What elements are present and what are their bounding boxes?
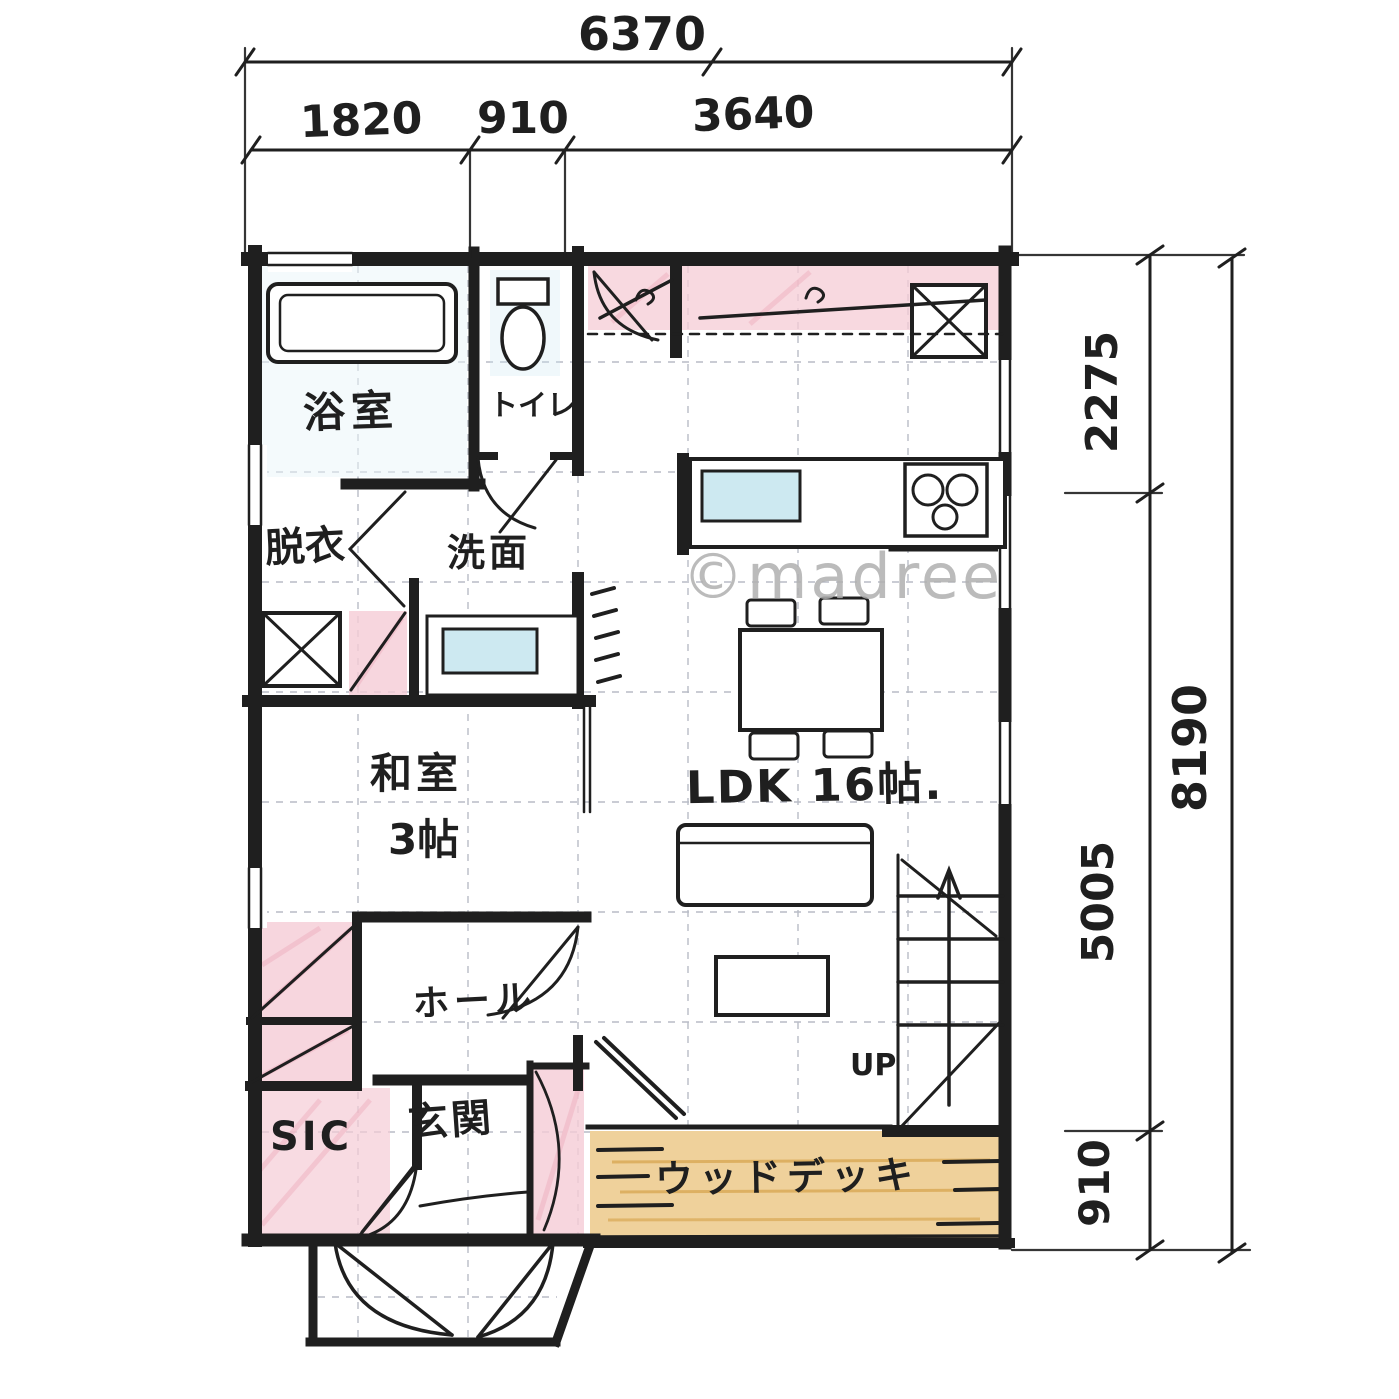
room-label-japanese-room: 和室 (370, 752, 462, 796)
toilet-icon (498, 279, 548, 369)
dimension-lines-top (236, 48, 1021, 258)
window (243, 445, 267, 525)
room-label-wood-deck: ウッドデッキ (655, 1156, 920, 1200)
opening-hatch-marks (592, 588, 620, 682)
room-label-dressing: 脱衣 (264, 524, 346, 570)
room-label-japanese-room-size: 3帖 (388, 818, 459, 862)
stove-icon (905, 464, 987, 536)
room-label-bath: 浴室 (302, 388, 399, 435)
stairs-up-label: UP (850, 1050, 896, 1082)
vanity-basin-icon (427, 616, 578, 695)
sofa-icon (678, 825, 872, 905)
dim-right-seg-910: 910 (1073, 1139, 1117, 1227)
floor-plan-sketch: 6370 1820 910 3640 2275 5005 910 8190 浴室… (0, 0, 1399, 1399)
bathtub-icon (268, 284, 456, 362)
window (268, 246, 352, 272)
kitchen-sink-icon (702, 471, 800, 521)
refrigerator-icon (912, 285, 986, 357)
window (243, 868, 267, 928)
dining-table-icon (740, 598, 882, 759)
room-label-washroom: 洗面 (447, 534, 531, 574)
room-label-ldk: LDK 16帖. (686, 760, 944, 812)
room-label-hall: ホール (412, 980, 537, 1024)
dim-right-seg-5005: 5005 (1076, 841, 1122, 963)
watermark: ©madree (682, 540, 1003, 613)
dim-top-seg-1820: 1820 (299, 96, 423, 146)
dim-top-seg-3640: 3640 (691, 90, 815, 140)
dim-top-total: 6370 (578, 10, 706, 58)
window (998, 360, 1022, 452)
stairs-icon (898, 855, 1003, 1131)
kitchen-counter-icon (690, 459, 1005, 547)
entrance-step-line (420, 1192, 528, 1206)
dim-top-seg-910: 910 (477, 96, 569, 142)
entrance-double-door-icon (335, 1243, 553, 1337)
window (998, 722, 1022, 804)
room-label-sic: SIC (270, 1116, 352, 1158)
coffee-table-icon (716, 957, 828, 1015)
sliding-door-deck-icon (596, 1038, 684, 1118)
washing-machine-icon (263, 613, 340, 686)
chair-icon (824, 731, 872, 757)
dim-right-total: 8190 (1166, 684, 1214, 812)
chair-icon (750, 733, 798, 759)
room-label-entrance: 玄関 (407, 1097, 496, 1145)
toilet-door-icon (478, 458, 556, 532)
dim-right-seg-2275: 2275 (1080, 331, 1126, 453)
room-label-toilet: トイレ (489, 390, 576, 420)
